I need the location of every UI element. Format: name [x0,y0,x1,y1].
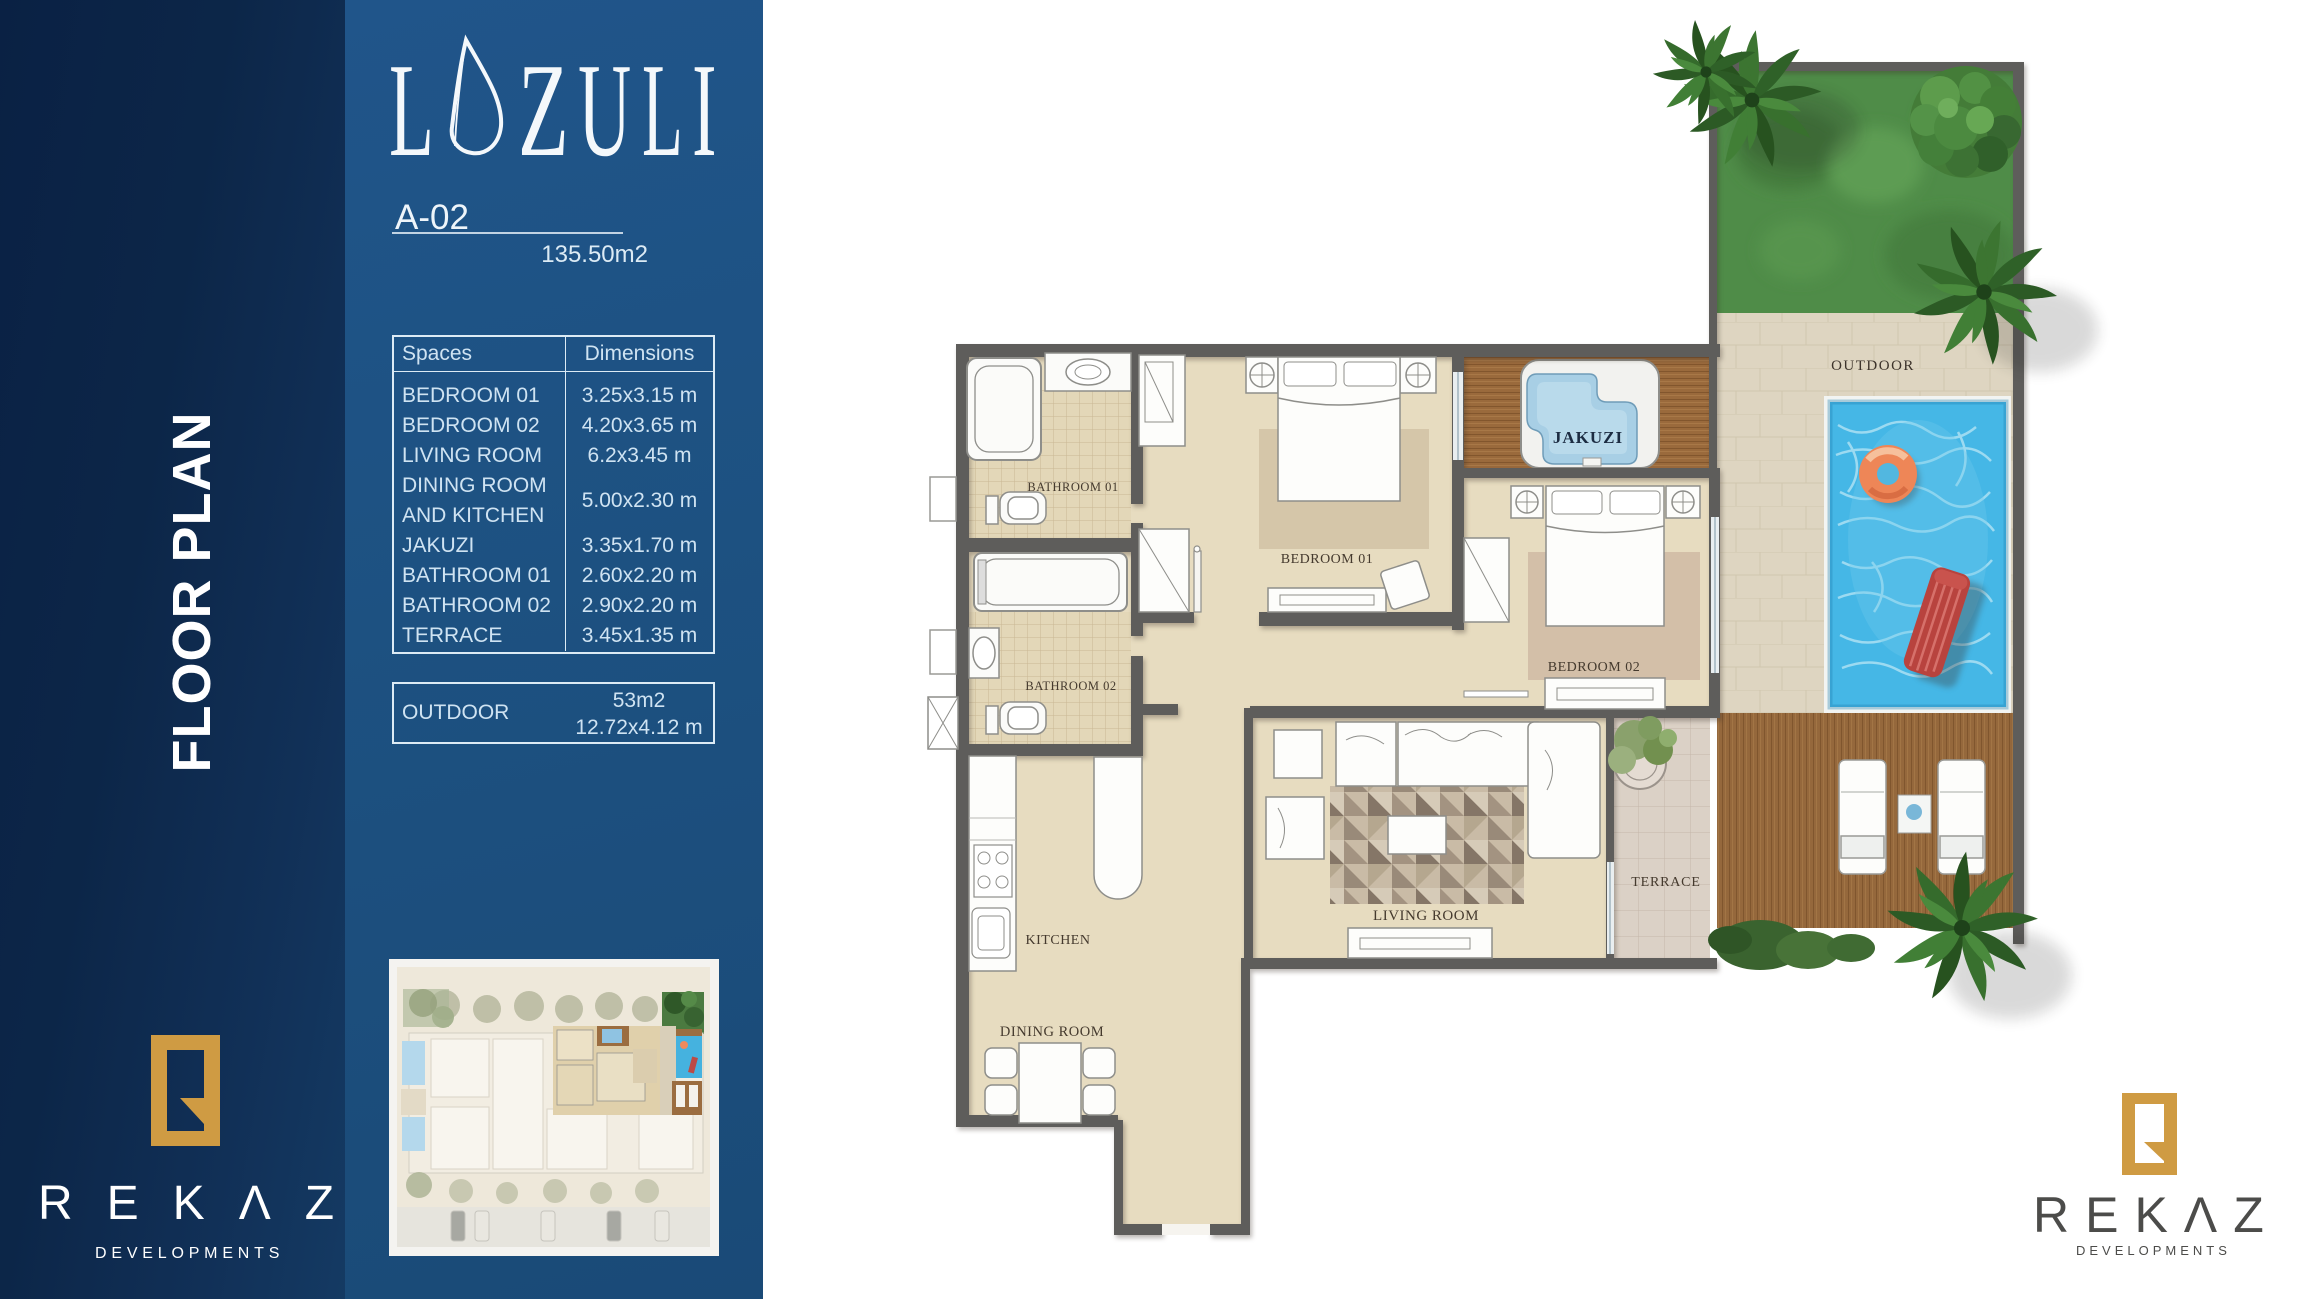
svg-text:U: U [578,37,631,170]
svg-text:I: I [692,37,717,170]
svg-text:DINING ROOM: DINING ROOM [1000,1024,1104,1040]
svg-text:Z: Z [518,37,569,170]
svg-text:LIVING ROOM: LIVING ROOM [1373,908,1479,924]
svg-text:BATHROOM 01: BATHROOM 01 [1027,480,1118,494]
svg-text:L: L [389,37,434,170]
svg-text:L: L [642,36,683,170]
svg-text:BATHROOM 02: BATHROOM 02 [1025,679,1116,693]
svg-text:JAKUZI: JAKUZI [1553,428,1623,447]
svg-text:KITCHEN: KITCHEN [1026,933,1091,948]
svg-text:BEDROOM 02: BEDROOM 02 [1548,660,1641,675]
svg-text:BEDROOM 01: BEDROOM 01 [1281,552,1374,567]
svg-text:OUTDOOR: OUTDOOR [1831,358,1915,374]
svg-text:TERRACE: TERRACE [1631,875,1700,890]
